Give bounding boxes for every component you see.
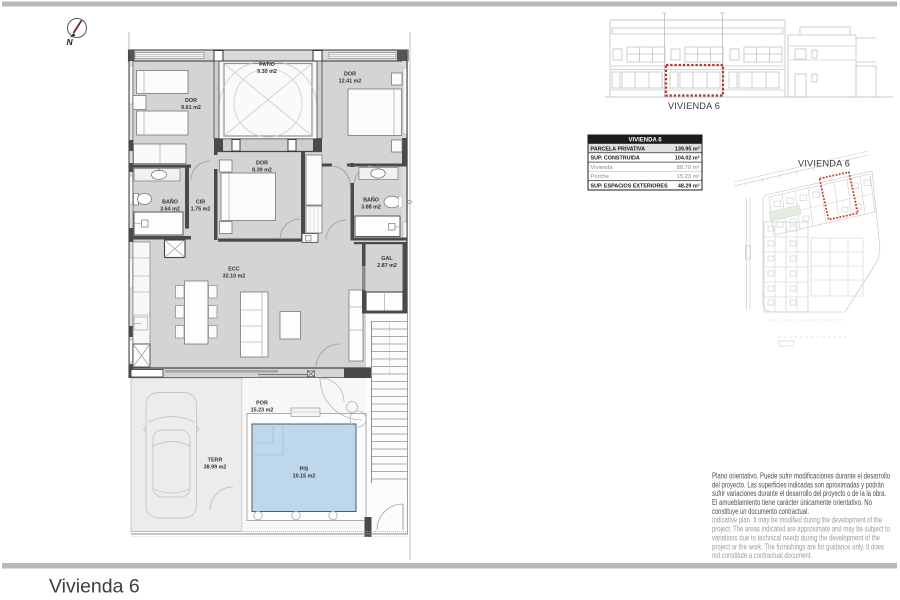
svg-text:1.75 m2: 1.75 m2 — [191, 207, 211, 213]
svg-text:10.15 m2: 10.15 m2 — [293, 474, 316, 480]
svg-text:CIR: CIR — [196, 200, 205, 206]
svg-text:15.23 m2: 15.23 m2 — [251, 408, 274, 414]
svg-text:Indicative plan. It may be mod: Indicative plan. It may be modified duri… — [712, 516, 882, 525]
svg-text:PATIO: PATIO — [259, 62, 275, 68]
svg-text:N: N — [67, 37, 74, 47]
svg-text:32.10 m2: 32.10 m2 — [223, 274, 246, 280]
svg-text:BAÑO: BAÑO — [363, 197, 379, 204]
svg-text:9.61 m2: 9.61 m2 — [181, 105, 201, 111]
svg-text:project or the work. The furni: project or the work. The furnishings are… — [712, 542, 884, 551]
svg-text:variations due to technical ne: variations due to technical needs during… — [712, 533, 880, 542]
svg-text:104.02 m²: 104.02 m² — [675, 156, 700, 162]
svg-text:48.29 m²: 48.29 m² — [678, 184, 700, 190]
svg-text:38.99 m2: 38.99 m2 — [204, 465, 227, 471]
svg-text:BAÑO: BAÑO — [162, 199, 178, 206]
svg-text:VIVIENDA 6: VIVIENDA 6 — [668, 101, 720, 111]
svg-text:3.88 m2: 3.88 m2 — [361, 205, 381, 211]
svg-text:Porche: Porche — [591, 174, 609, 180]
svg-text:project. The areas indicated a: project. The areas indicated are approxi… — [712, 525, 890, 534]
svg-text:ECC: ECC — [228, 267, 239, 273]
svg-text:15.23 m²: 15.23 m² — [677, 174, 700, 180]
svg-text:PARCELA PRIVATIVA: PARCELA PRIVATIVA — [591, 146, 646, 152]
svg-text:constituye un documento contra: constituye un documento contractual. — [712, 507, 809, 516]
svg-text:Plano orientativo. Puede sufri: Plano orientativo. Puede sufrir modifica… — [712, 472, 890, 481]
svg-text:9.30 m2: 9.30 m2 — [257, 69, 277, 75]
svg-text:not constitute a contractual d: not constitute a contractual document. — [712, 551, 812, 560]
svg-text:sufrir variaciones durante el: sufrir variaciones durante el desarrollo… — [712, 489, 886, 498]
svg-text:del proyecto. Las superficies: del proyecto. Las superficies indicadas … — [712, 480, 884, 489]
svg-text:Vivienda: Vivienda — [591, 165, 614, 171]
svg-text:El amueblamiento tiene carácte: El amueblamiento tiene carácter únicamen… — [712, 498, 872, 507]
svg-text:VIVIENDA 6: VIVIENDA 6 — [798, 159, 850, 169]
svg-text:12.41 m2: 12.41 m2 — [339, 79, 362, 85]
svg-text:GAL: GAL — [381, 256, 393, 262]
svg-text:DOR: DOR — [185, 98, 197, 104]
svg-text:2.87 m2: 2.87 m2 — [377, 263, 397, 269]
svg-text:POR: POR — [256, 401, 268, 407]
svg-text:DOR: DOR — [256, 161, 268, 167]
svg-text:DOR: DOR — [344, 72, 356, 78]
svg-text:PIS: PIS — [300, 467, 309, 473]
svg-text:139.95 m²: 139.95 m² — [675, 146, 700, 152]
svg-text:SUP. ESPACIOS EXTERIORES: SUP. ESPACIOS EXTERIORES — [591, 184, 668, 190]
svg-text:88.79 m²: 88.79 m² — [677, 165, 700, 171]
svg-text:TERR: TERR — [208, 458, 223, 464]
svg-text:VIVIENDA 6: VIVIENDA 6 — [628, 138, 662, 144]
svg-text:SUP. CONSTRUIDA: SUP. CONSTRUIDA — [591, 156, 640, 162]
svg-text:Vivienda 6: Vivienda 6 — [49, 576, 140, 598]
